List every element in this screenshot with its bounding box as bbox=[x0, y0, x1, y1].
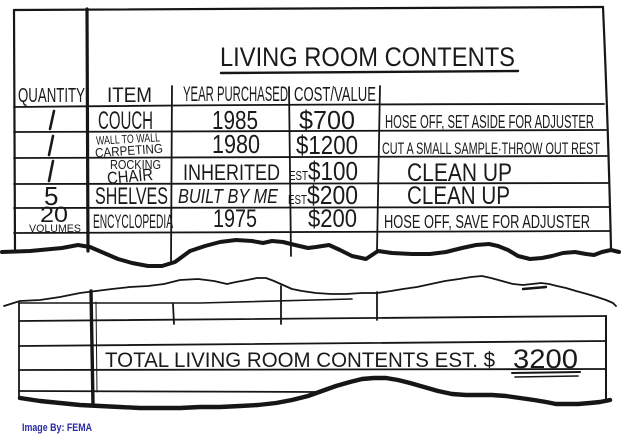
svg-text:SHELVES: SHELVES bbox=[95, 183, 168, 210]
svg-text:$200: $200 bbox=[308, 205, 357, 233]
svg-text:CLEAN UP: CLEAN UP bbox=[407, 182, 510, 210]
svg-text:VOLUMES: VOLUMES bbox=[29, 223, 81, 235]
svg-text:INHERITED: INHERITED bbox=[183, 160, 280, 185]
svg-text:ENCYCLOPEDIA: ENCYCLOPEDIA bbox=[93, 212, 173, 233]
svg-text:YEAR PURCHASED: YEAR PURCHASED bbox=[183, 83, 288, 106]
svg-text:LIVING ROOM CONTENTS: LIVING ROOM CONTENTS bbox=[220, 42, 515, 72]
svg-text:HOSE OFF, SAVE FOR ADJUSTER: HOSE OFF, SAVE FOR ADJUSTER bbox=[384, 212, 590, 232]
svg-text:Image By: FEMA: Image By: FEMA bbox=[22, 422, 92, 434]
svg-text:EST: EST bbox=[289, 168, 308, 183]
svg-text:ITEM: ITEM bbox=[107, 84, 152, 107]
svg-text:HOSE OFF, SET ASIDE FOR ADJUST: HOSE OFF, SET ASIDE FOR ADJUSTER bbox=[385, 112, 594, 132]
svg-text:QUANTITY: QUANTITY bbox=[18, 85, 85, 107]
svg-text:TOTAL LIVING ROOM CONTENTS EST: TOTAL LIVING ROOM CONTENTS EST. $ bbox=[105, 349, 495, 372]
svg-text:EST: EST bbox=[288, 192, 307, 207]
svg-text:COST/VALUE: COST/VALUE bbox=[294, 84, 376, 106]
svg-text:3200: 3200 bbox=[513, 344, 578, 374]
svg-text:1975: 1975 bbox=[213, 205, 257, 233]
svg-text:CUT A SMALL SAMPLE·THROW OUT R: CUT A SMALL SAMPLE·THROW OUT REST bbox=[382, 139, 600, 158]
svg-text:1980: 1980 bbox=[212, 129, 260, 159]
